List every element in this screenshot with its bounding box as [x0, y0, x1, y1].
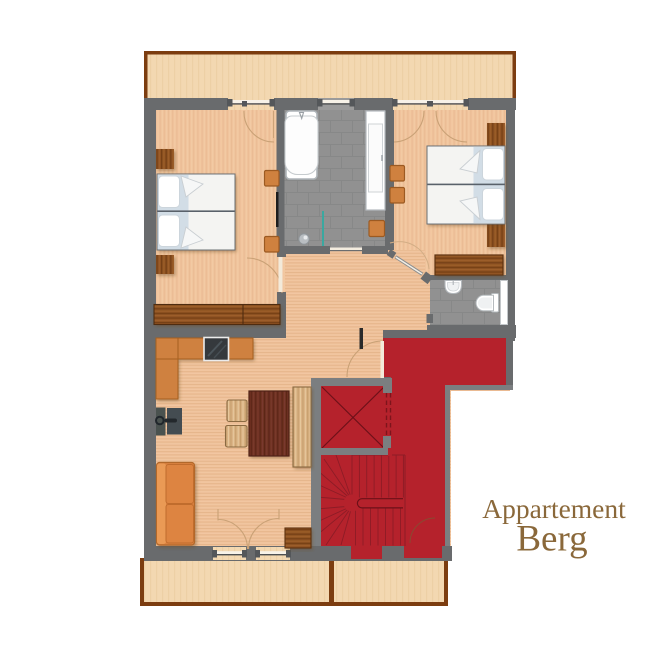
- svg-text:Berg: Berg: [516, 519, 587, 560]
